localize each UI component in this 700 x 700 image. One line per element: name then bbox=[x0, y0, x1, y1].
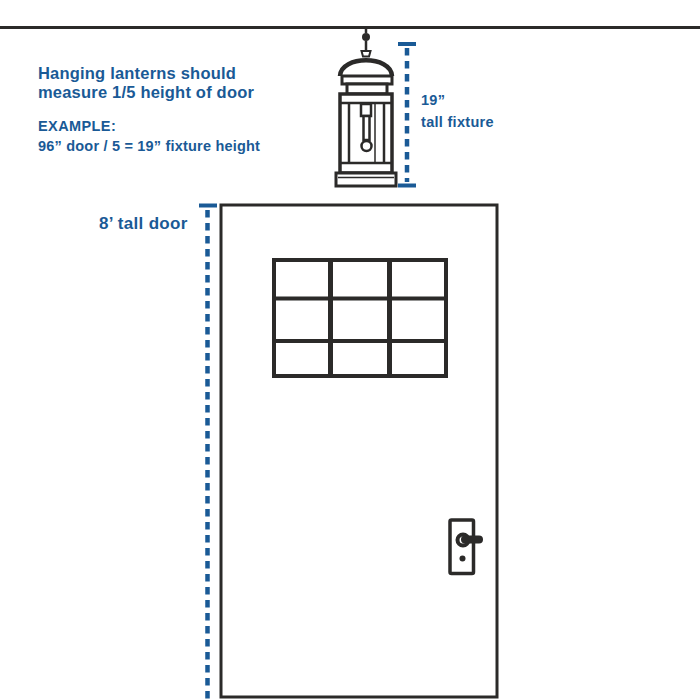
headline-text: Hanging lanterns should measure 1/5 heig… bbox=[38, 64, 254, 102]
example-formula: 96” door / 5 = 19” fixture height bbox=[38, 138, 260, 154]
door-handle-icon bbox=[450, 520, 479, 574]
fixture-height-measure-line bbox=[398, 44, 416, 186]
door-window-grid bbox=[274, 260, 446, 376]
door-height-measure-line bbox=[199, 206, 217, 700]
hanging-lantern-icon bbox=[336, 27, 396, 186]
fixture-height-label: 19” tall fixture bbox=[421, 89, 494, 133]
door-height-label: 8’ tall door bbox=[99, 214, 188, 234]
door-icon bbox=[221, 205, 497, 697]
diagram-artwork bbox=[0, 0, 700, 700]
lantern-sizing-diagram: Hanging lanterns should measure 1/5 heig… bbox=[0, 0, 700, 700]
example-label: EXAMPLE: bbox=[38, 118, 116, 134]
